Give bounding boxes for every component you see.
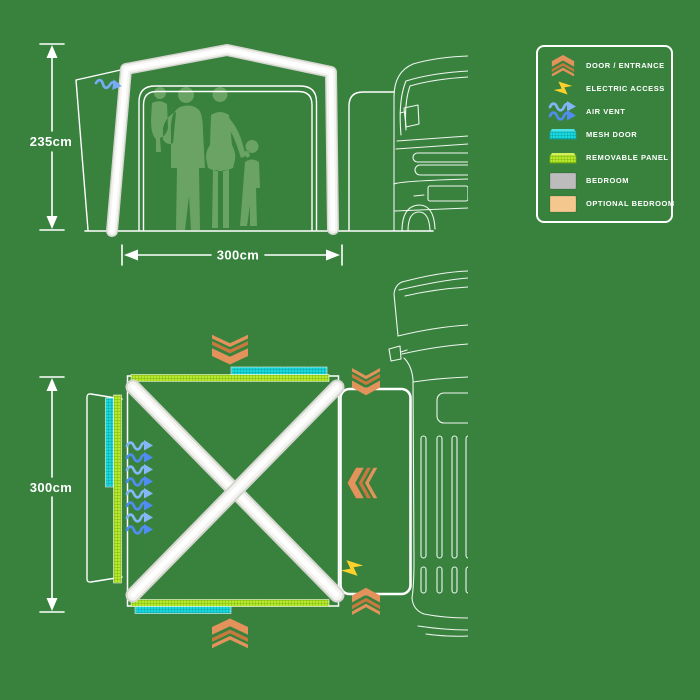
van-top-outline: [389, 271, 477, 636]
air-vent-icon: [127, 464, 153, 475]
removable-panel-top: [131, 375, 329, 382]
legend-item-label: DOOR / ENTRANCE: [586, 61, 665, 70]
electric-access-icon: [546, 77, 580, 99]
legend-item-electric-access: ELECTRIC ACCESS: [546, 77, 665, 99]
crossed-air-beams: [133, 387, 337, 595]
air-vent-icon: [127, 488, 153, 499]
arrowhead-down-icon: [47, 216, 58, 229]
plan-view: 300cm: [30, 271, 477, 648]
awning-sleeve-outline: [349, 92, 394, 230]
mesh-door-left: [106, 398, 114, 487]
arrowhead-left-icon: [124, 250, 138, 261]
air-vent-icon: [127, 500, 153, 511]
legend-item-door-entrance: DOOR / ENTRANCE: [546, 54, 665, 76]
optional-bedroom-icon: [546, 193, 580, 215]
door-entrance-icon-bottom: [212, 619, 248, 649]
mesh-door-bottom: [135, 607, 231, 614]
mesh-door-icon: [546, 123, 580, 145]
door-entrance-icon-top: [212, 335, 248, 365]
legend-item-label: ELECTRIC ACCESS: [586, 84, 665, 93]
electric-access-icon: [338, 555, 366, 582]
air-vent-icon: [546, 100, 580, 122]
legend-item-removable-panel: REMOVABLE PANEL: [546, 147, 665, 169]
width-label: 300cm: [217, 248, 259, 263]
legend-item-label: OPTIONAL BEDROOM: [586, 199, 675, 208]
legend-item-air-vent: AIR VENT: [546, 100, 665, 122]
legend-item-bedroom: BEDROOM: [546, 170, 665, 192]
legend-item-label: BEDROOM: [586, 176, 629, 185]
door-entrance-icon: [546, 54, 580, 76]
air-vent-icon: [127, 452, 153, 463]
height-dimension: 235cm: [30, 44, 72, 230]
door-entrance-icon-tunnel-bottom: [352, 588, 380, 615]
arrowhead-right-icon: [326, 250, 340, 261]
removable-panel-bottom: [131, 600, 329, 607]
front-view: 235cm 300cm: [30, 44, 473, 265]
legend-item-optional-bedroom: OPTIONAL BEDROOM: [546, 193, 665, 215]
width-dimension: 300cm: [122, 245, 342, 265]
depth-dimension: 300cm: [30, 377, 72, 612]
air-vent-icon: [127, 524, 153, 535]
air-vent-icon: [127, 476, 153, 487]
mesh-door-top: [231, 367, 327, 375]
arrowhead-up-icon: [47, 45, 58, 58]
depth-label: 300cm: [30, 480, 72, 495]
van-sunroof: [437, 393, 477, 423]
van-license-plate: [428, 186, 468, 201]
air-vent-icon: [127, 512, 153, 523]
arrowhead-up-icon: [47, 378, 58, 391]
family-silhouette: [151, 87, 260, 230]
van-front-outline: [394, 56, 473, 231]
panel-strips: [106, 367, 330, 614]
legend-item-mesh-door: MESH DOOR: [546, 123, 665, 145]
door-entrance-icon-tunnel-top: [352, 368, 380, 395]
legend-item-label: MESH DOOR: [586, 130, 637, 139]
arrowhead-down-icon: [47, 598, 58, 611]
door-entrance-icon-tunnel-right: [348, 468, 378, 499]
removable-panel-icon: [546, 147, 580, 169]
legend-item-label: REMOVABLE PANEL: [586, 153, 669, 162]
legend-item-label: AIR VENT: [586, 107, 625, 116]
height-label: 235cm: [30, 134, 72, 149]
air-vent-icon: [127, 440, 153, 451]
legend-panel: DOOR / ENTRANCE ELECTRIC ACCESS AIR VENT: [536, 45, 673, 223]
bedroom-icon: [546, 170, 580, 192]
van-mirror-icon: [389, 346, 401, 361]
awning-infographic: 235cm 300cm: [0, 0, 700, 700]
air-vent-arrows: [127, 440, 153, 535]
removable-panel-left: [114, 395, 122, 583]
